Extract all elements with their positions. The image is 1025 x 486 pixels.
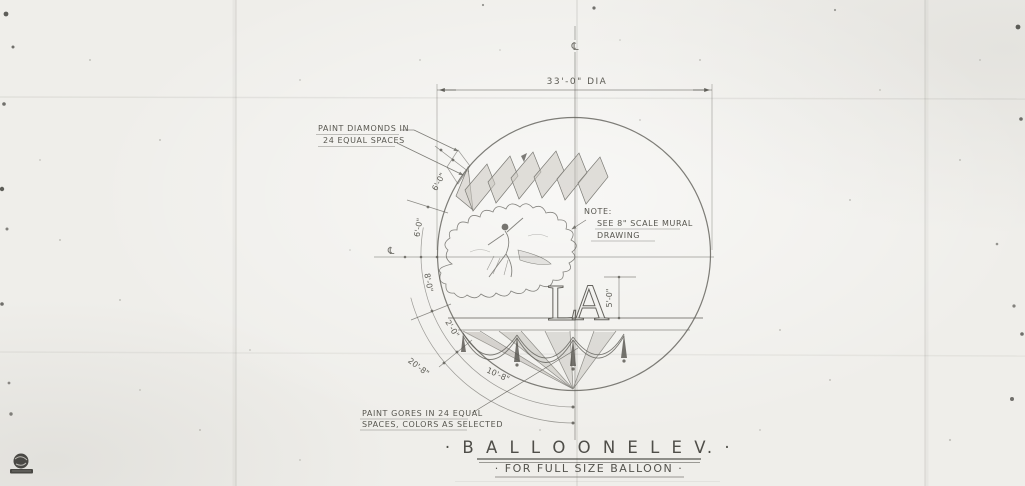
dim-upper-arc: 6'-0" [412, 217, 424, 237]
arc-dimension-texts: 6'-0" 6'-0" 8'-0" 2'-0" 20'-8" 10'-8" [406, 171, 511, 383]
centerline-symbol-left: ℄ [387, 246, 395, 257]
dim-band-height: 2'-0" [443, 318, 461, 339]
title-block: · B A L L O O N E L E V. · · FOR FULL SI… [445, 438, 733, 482]
dim-lower-arc: 8'-0" [422, 272, 434, 292]
drawing-canvas: ℄ ℄ 33'-0" DIA 6'-0" [0, 0, 1025, 486]
mural-figure [470, 218, 551, 277]
gore-section [461, 331, 627, 389]
dim-gore-arc-outer: 20'-8" [406, 356, 431, 378]
publisher-stamp-icon [10, 454, 33, 474]
dim-diamond-band: 6'-0" [430, 171, 447, 192]
centerlines: ℄ ℄ [374, 26, 714, 440]
note-line2: DRAWING [597, 231, 640, 240]
diamond-band [456, 151, 608, 211]
blueprint-sheet: ℄ ℄ 33'-0" DIA 6'-0" [0, 0, 1025, 486]
drawing-subtitle: · FOR FULL SIZE BALLOON · [495, 462, 683, 475]
dim-monogram-height: 5'-0" [605, 289, 614, 308]
paint-diamonds-line2: 24 EQUAL SPACES [323, 136, 405, 145]
paper-fold-creases [0, 0, 1025, 486]
diameter-dimension-text: 33'-0" DIA [547, 77, 608, 87]
la-monogram: LA [547, 275, 610, 332]
drawing-title: · B A L L O O N E L E V. · [445, 438, 733, 457]
mural-note-label: NOTE: SEE 8" SCALE MURAL DRAWING [584, 207, 693, 241]
note-heading: NOTE: [584, 207, 612, 216]
paint-diamonds-line1: PAINT DIAMONDS IN [318, 124, 409, 133]
paint-gores-line2: SPACES, COLORS AS SELECTED [362, 420, 503, 429]
centerline-symbol-top: ℄ [570, 40, 578, 53]
note-line1: SEE 8" SCALE MURAL [597, 219, 693, 228]
monogram-height-dimension: 5'-0" [604, 276, 636, 320]
paint-gores-line1: PAINT GORES IN 24 EQUAL [362, 409, 483, 418]
paint-gores-label: PAINT GORES IN 24 EQUAL SPACES, COLORS A… [360, 409, 503, 430]
paint-diamonds-label: PAINT DIAMONDS IN 24 EQUAL SPACES [316, 124, 409, 147]
paper-specks [0, 4, 1024, 461]
